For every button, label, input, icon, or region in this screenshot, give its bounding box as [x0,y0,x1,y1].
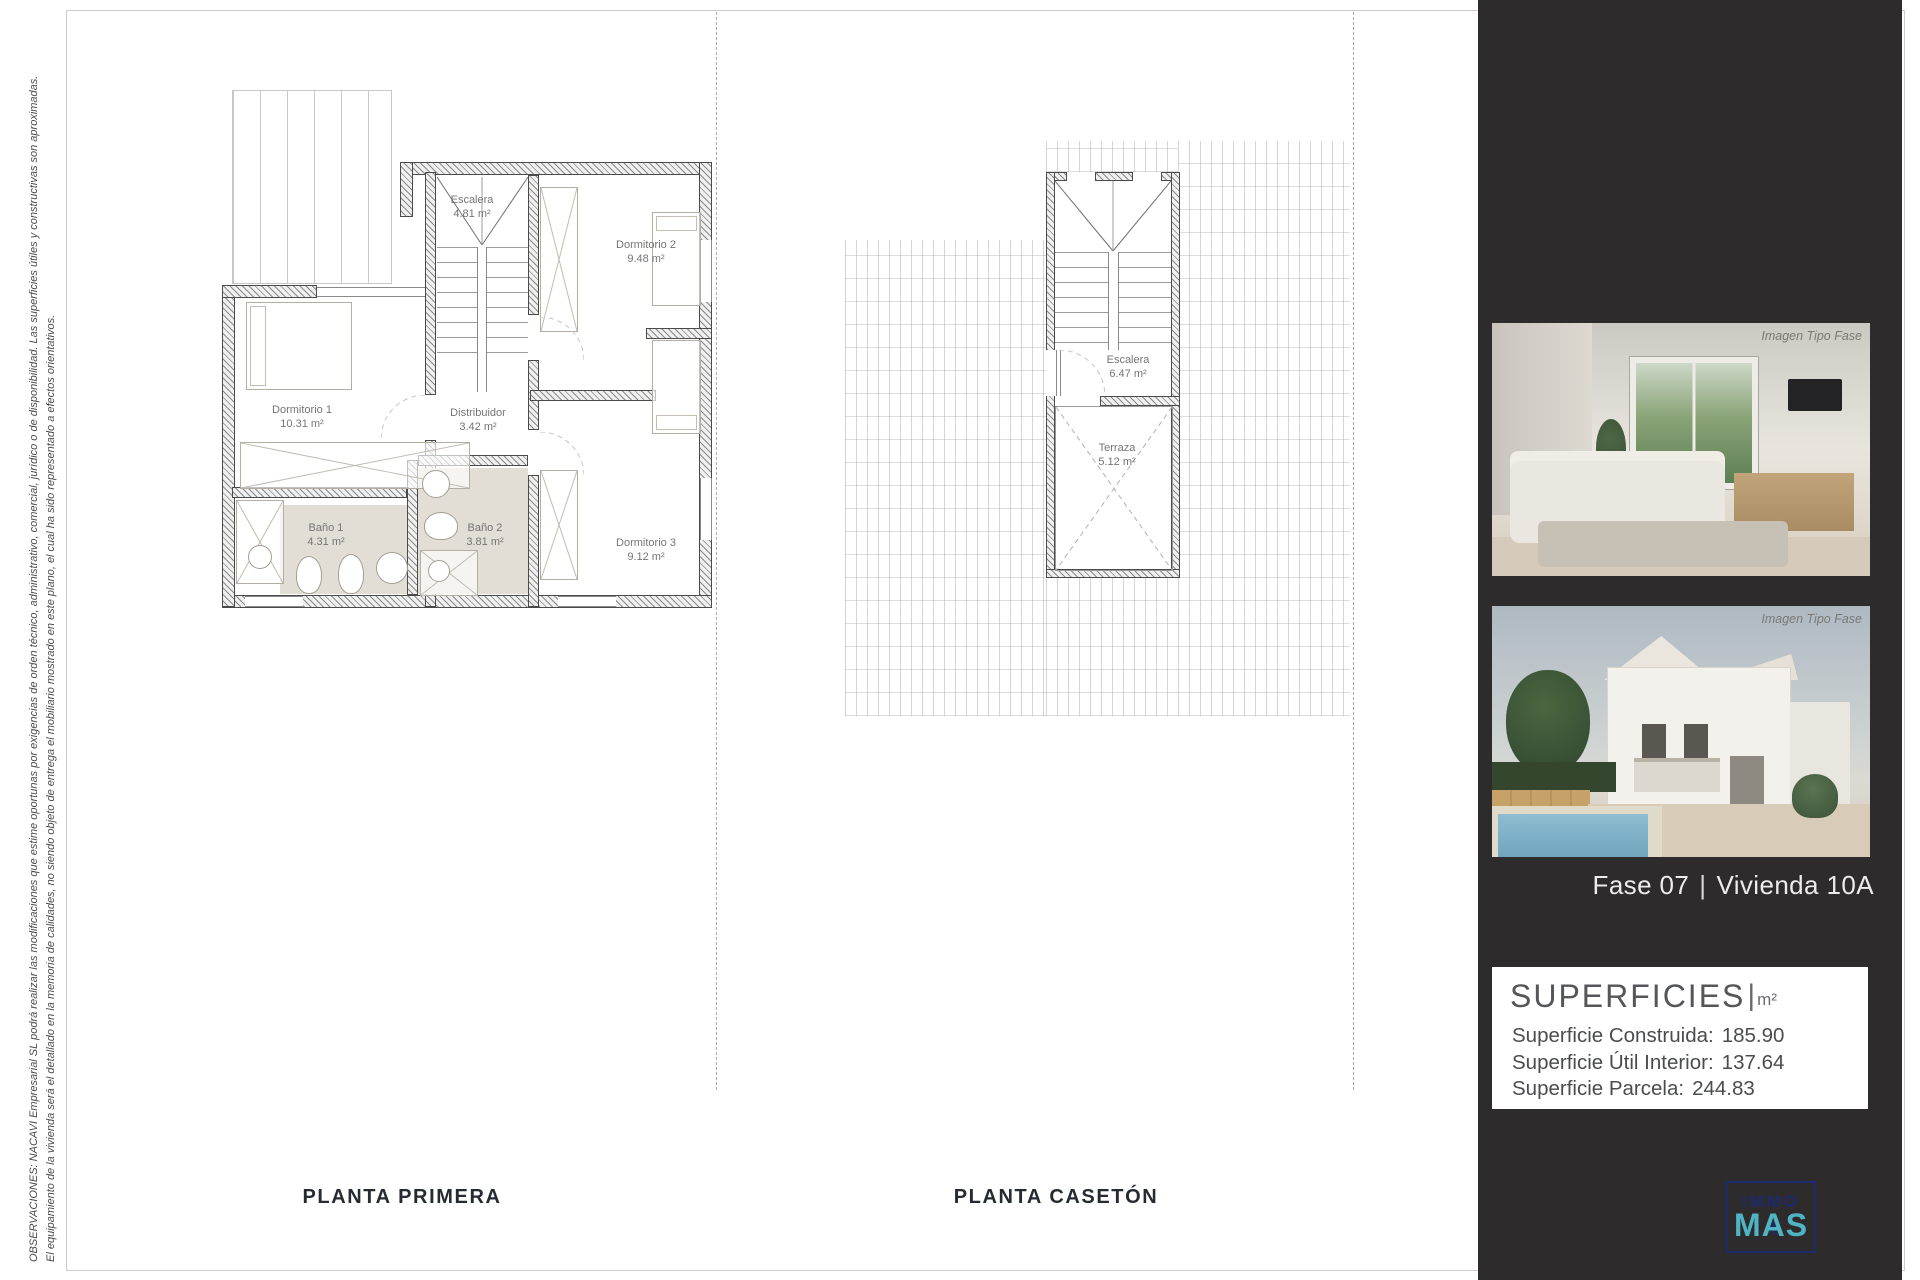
wall-segment [1100,396,1180,406]
door-opening [1046,350,1055,396]
wall-segment [528,475,539,607]
separator: | [1699,870,1706,900]
door-swing-arc [381,395,425,439]
roof-tiles [1178,141,1350,716]
bed-pillow [656,415,697,430]
plan-sheet: OBSERVACIONES: NACAVI Empresarial SL pod… [0,0,1920,1280]
sink [376,552,408,584]
logo-mas-text: MAS [1728,1207,1814,1244]
sink [422,470,450,498]
sidebar: Imagen Tipo Fase Imagen Tipo Fase Fase 0… [1478,0,1902,1280]
door-swing-arc [540,432,584,476]
plan-title-planta-caseton: PLANTA CASETÓN [954,1186,1159,1209]
shower [236,500,284,584]
room-label-distribuidor: Distribuidor 3.42 m² [450,406,506,434]
door-swing-arc [540,317,584,361]
bed-pillow [250,306,266,386]
window [317,287,425,297]
terrace-outline [1055,406,1173,571]
wall-segment [530,390,656,401]
toilet [424,512,458,540]
tree [1506,670,1590,774]
interior-photo: Imagen Tipo Fase [1492,323,1870,576]
superficies-title: SUPERFICIES|m² [1510,979,1777,1013]
wall-segment [528,175,539,315]
room-label-dormitorio1: Dormitorio 1 10.31 m² [272,403,332,431]
wall-segment [646,328,712,339]
wall-segment [400,162,413,217]
balcony [1634,758,1720,792]
disclaimer-line-2: El equipamiento de la vivienda será el d… [43,0,60,1262]
room-label-escalera: Escalera 4.81 m² [451,193,494,221]
room-label-escalera-caseton: Escalera 6.47 m² [1107,353,1150,381]
stair-stringer [1108,252,1119,350]
pool [1498,814,1648,857]
roof-tiles [1046,578,1178,716]
exterior-photo: Imagen Tipo Fase [1492,606,1870,857]
bidet [338,554,364,594]
disclaimer-vertical-text: OBSERVACIONES: NACAVI Empresarial SL pod… [26,0,60,1262]
wardrobe [540,470,578,580]
wall-segment [425,172,436,395]
room-label-terraza: Terraza 5.12 m² [1098,441,1135,469]
door-swing-arc [1059,350,1105,396]
shower-drain [248,545,272,569]
shower-drain [428,560,450,582]
disclaimer-line-1: OBSERVACIONES: NACAVI Empresarial SL pod… [26,0,43,1262]
photo-caption: Imagen Tipo Fase [1761,329,1862,343]
window [700,478,712,540]
stair-stringer [477,247,487,392]
shrub [1792,774,1838,818]
bed-pillow [656,216,697,231]
hedge [1492,762,1616,792]
room-label-bano1: Baño 1 4.31 m² [307,521,344,549]
unit-name: Vivienda 10A [1716,870,1874,900]
window [245,596,303,607]
immomas-logo: IMMO + MAS [1726,1181,1816,1253]
house-door [1730,756,1764,810]
superficie-util-row: Superficie Útil Interior:137.64 [1512,1050,1784,1077]
window [558,596,616,607]
plan-separator-dashed-line [1353,12,1354,1090]
plan-separator-dashed-line [716,12,717,1090]
plan-title-planta-primera: PLANTA PRIMERA [302,1186,501,1209]
rug [1538,521,1788,567]
unit-label: Fase 07|Vivienda 10A [1478,870,1874,901]
tv-screen [1788,379,1842,411]
wall-notch [1132,172,1162,181]
pergola-outline [232,90,392,284]
superficies-rows: Superficie Construida:185.90 Superficie … [1512,1023,1784,1103]
wall-segment [400,162,712,175]
wall-segment [222,285,235,607]
superficie-parcela-row: Superficie Parcela:244.83 [1512,1076,1784,1103]
photo-caption: Imagen Tipo Fase [1761,612,1862,626]
wall-segment [222,285,317,298]
phase-label: Fase 07 [1593,870,1690,900]
room-label-dormitorio2: Dormitorio 2 9.48 m² [616,238,676,266]
roof-tiles [1046,141,1178,172]
wardrobe [540,187,578,332]
wall-notch [1066,172,1096,181]
superficies-panel: SUPERFICIES|m² Superficie Construida:185… [1492,967,1868,1109]
roof-tiles [845,240,1046,716]
toilet [296,556,322,594]
room-label-bano2: Baño 2 3.81 m² [466,521,503,549]
window [700,240,712,302]
stair-hip-lines [1055,181,1171,253]
room-label-dormitorio3: Dormitorio 3 9.12 m² [616,536,676,564]
superficie-construida-row: Superficie Construida:185.90 [1512,1023,1784,1050]
